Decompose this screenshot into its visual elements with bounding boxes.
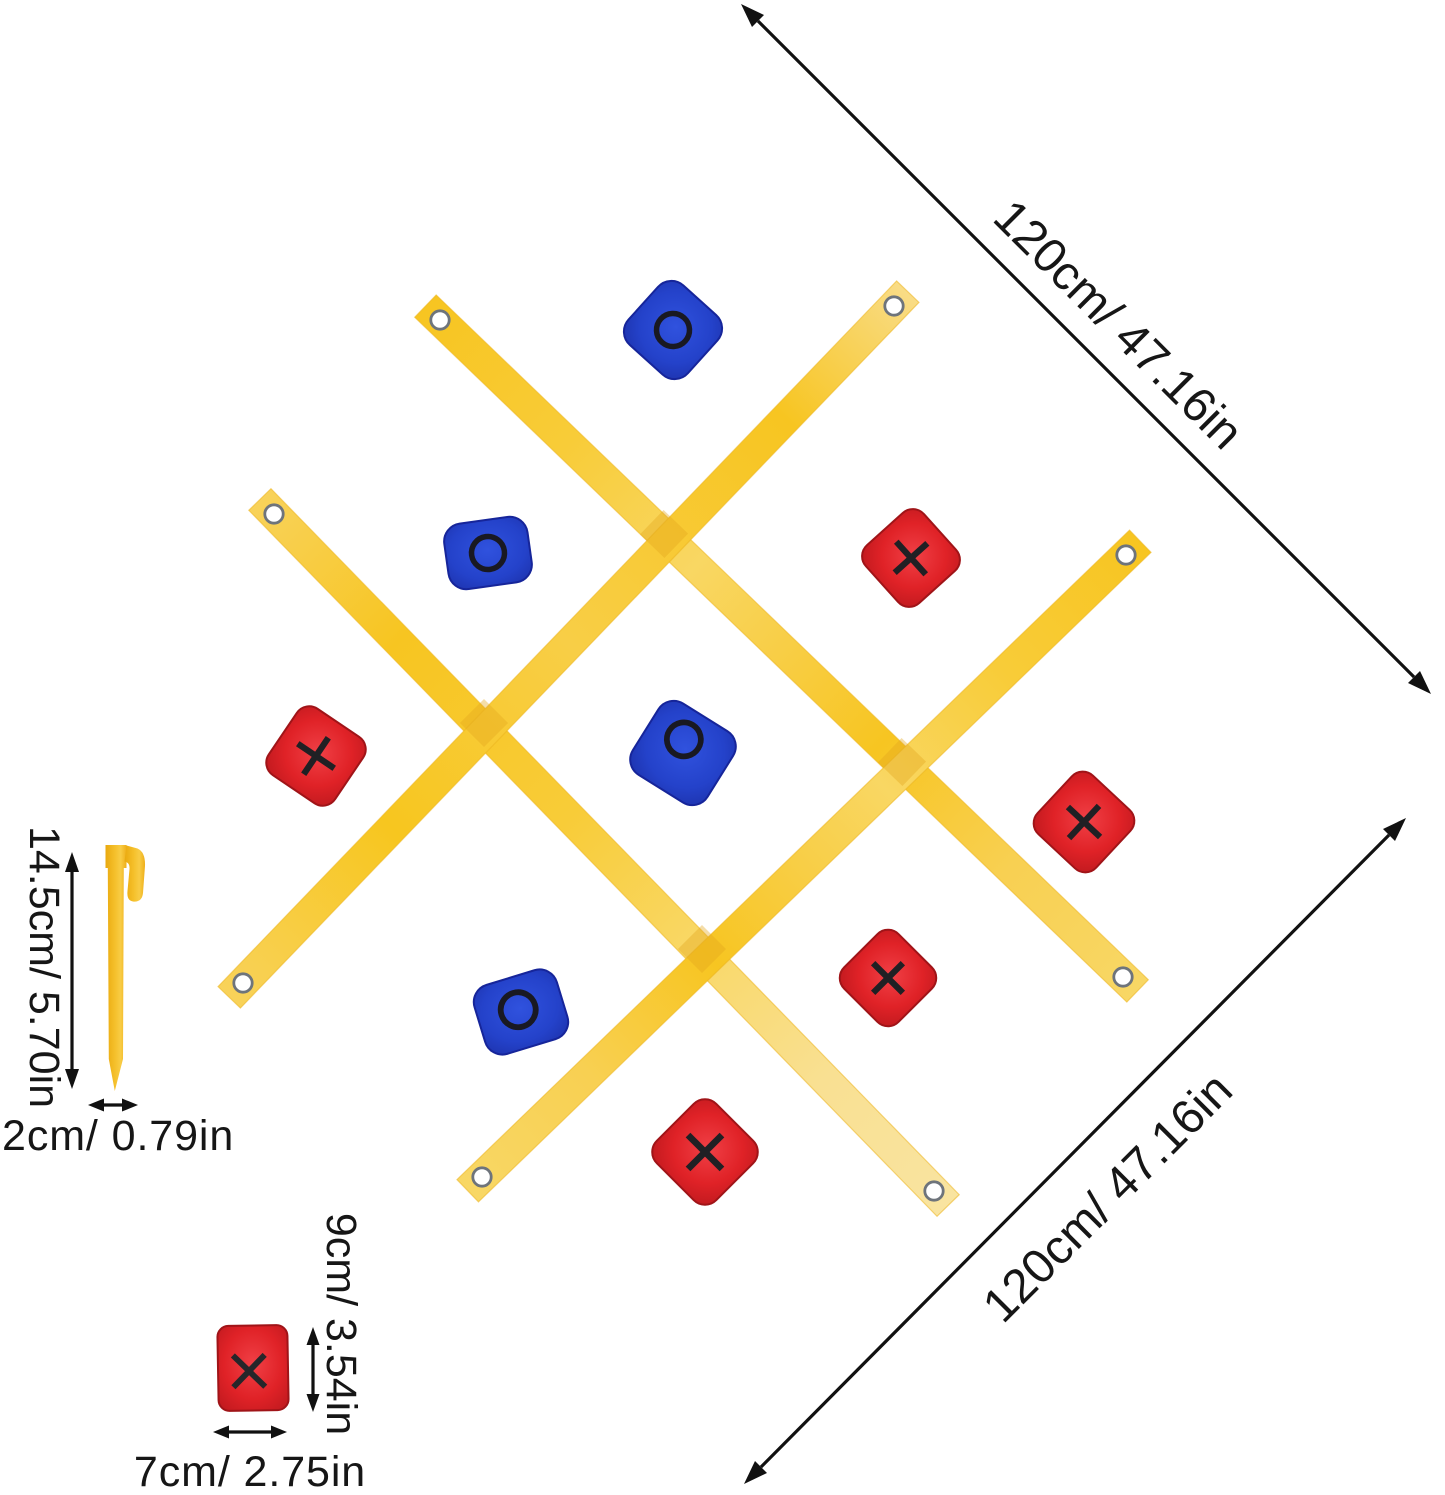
svg-text:14.5cm/ 5.70in: 14.5cm/ 5.70in (20, 826, 68, 1108)
svg-text:2cm/ 0.79in: 2cm/ 0.79in (2, 1112, 234, 1160)
svg-text:9cm/ 3.54in: 9cm/ 3.54in (317, 1213, 365, 1435)
svg-text:7cm/ 2.75in: 7cm/ 2.75in (134, 1448, 366, 1495)
